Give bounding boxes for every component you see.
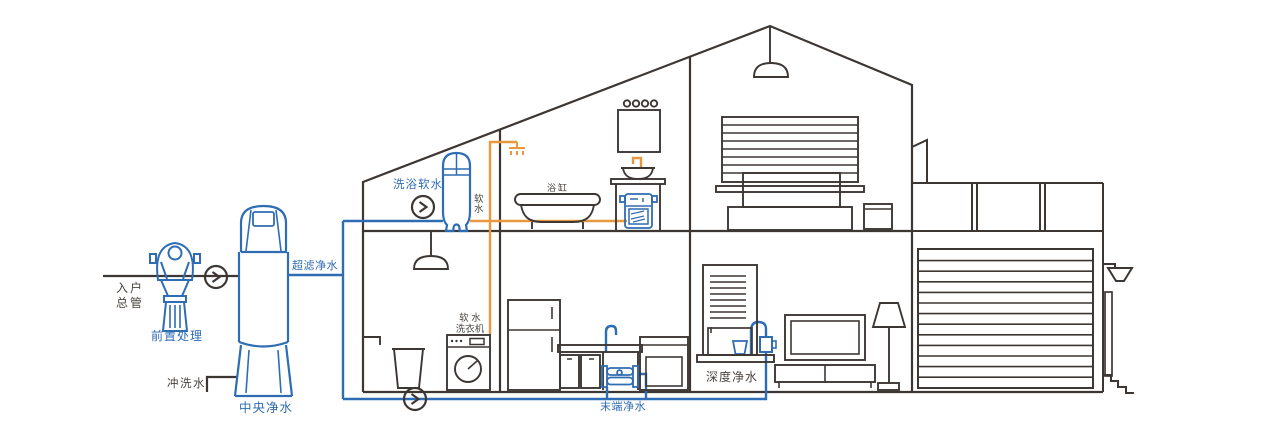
- oven-door: [646, 357, 682, 386]
- vanity-sink-bowl: [621, 168, 655, 179]
- pre-filter-port-left: [150, 254, 156, 263]
- flow-arrow-icon: [412, 196, 434, 218]
- water-dispenser-cabinet: [703, 265, 757, 355]
- garage: [912, 140, 1134, 393]
- bathtub-feet: [532, 222, 583, 229]
- label-deep-purifier: 深度净水: [706, 370, 758, 385]
- shower-head-icon: [509, 142, 525, 155]
- central-purifier-head-facets: [246, 210, 281, 251]
- dispenser-vents: [710, 276, 746, 318]
- label-pre-treatment: 前置处理: [151, 329, 203, 344]
- kitchen-fixtures: [508, 300, 688, 390]
- label-central-purifier: 中央净水: [239, 401, 293, 417]
- label-ultrafiltration: 超滤净水: [292, 260, 338, 274]
- filter-tube-bottom: [607, 378, 633, 385]
- house-water-system-diagram: 入户 总管 前置处理 冲洗水 中央净水 超滤净水 洗浴软水 软 水 浴缸 软 水…: [0, 0, 1280, 434]
- garage-rail-posts: [972, 183, 1103, 392]
- label-entry-main: 入户 总管: [116, 281, 144, 311]
- bedroom-fixtures: [716, 26, 892, 230]
- filter-gauge: [617, 370, 622, 375]
- bathtub-rim: [515, 194, 600, 205]
- garage-deck-rails: [912, 183, 1103, 231]
- water-cup-icon: [733, 341, 747, 354]
- garage-parapet: [912, 140, 927, 182]
- vanity-device-waves: [631, 211, 645, 222]
- bathroom-mirror: [618, 110, 660, 152]
- bed-headboard: [743, 173, 840, 207]
- vanity-device-controls: [626, 198, 651, 206]
- laundry-pendant-lamp: [414, 256, 448, 269]
- pre-filter-dial: [169, 247, 182, 260]
- vanity-device-panel: [629, 209, 648, 224]
- window-blinds-slats: [722, 125, 858, 173]
- soft-water-pipes: [470, 142, 641, 335]
- label-flush-water: 冲洗水: [167, 377, 206, 391]
- pre-filter-device: [150, 243, 200, 331]
- kitchen-counter: [558, 345, 642, 352]
- house-diagram-svg: [0, 0, 1280, 434]
- laundry-basket: [392, 349, 425, 388]
- filter-cap-right: [633, 366, 638, 387]
- central-purifier-body: [239, 252, 288, 342]
- central-purifier-window: [253, 212, 274, 226]
- dispenser-counter: [697, 355, 774, 362]
- window-sill: [716, 186, 864, 192]
- garage-door-slats: [918, 261, 1093, 378]
- kitchen-faucet: [606, 326, 616, 352]
- vanity-undersink-device: [620, 194, 657, 228]
- dispenser-inline-filter: [760, 337, 772, 352]
- bedroom-pendant-lamp: [754, 63, 788, 77]
- outdoor-wall-lamp-icon: [1103, 264, 1132, 281]
- utility-faucet: [364, 337, 380, 345]
- pre-filter-neck: [161, 280, 189, 296]
- label-bathtub: 浴缸: [547, 183, 569, 194]
- dispenser-filter-tab: [772, 341, 776, 348]
- laundry-room-fixtures: [364, 231, 490, 390]
- washer-buttons-icon: [451, 340, 462, 342]
- label-terminal-purifier: 末端净水: [600, 401, 646, 415]
- bathroom-fixtures: [515, 100, 665, 230]
- pre-filter-port-right: [194, 254, 200, 263]
- softener-tank-seams: [444, 154, 470, 175]
- cabinet-door-2: [581, 355, 600, 388]
- entry-steps: [1103, 375, 1134, 393]
- pre-filter-head: [157, 243, 193, 280]
- vanity-faucet: [633, 158, 641, 168]
- filter-cap-left: [602, 366, 607, 387]
- washer-display: [470, 339, 484, 345]
- bed-body: [728, 207, 852, 230]
- vanity-legs: [616, 184, 660, 230]
- vanity-device-tab-right: [652, 196, 657, 202]
- label-soft-water: 软 水: [474, 195, 484, 215]
- downspout: [1105, 292, 1112, 376]
- central-purifier-base: [235, 345, 292, 396]
- soft-water-riser-pipe: [490, 142, 517, 335]
- central-purifier-device: [235, 206, 292, 396]
- label-soft-washer: 软 水 洗衣机: [452, 313, 488, 335]
- flush-water-pipe: [207, 377, 238, 392]
- pre-filter-ribs: [170, 305, 180, 328]
- water-softener-device: [443, 153, 470, 231]
- undersink-terminal-filter-device: [602, 366, 638, 387]
- bathtub-bowl: [521, 205, 594, 222]
- nightstand: [864, 204, 892, 229]
- washer-door-handle: [468, 361, 477, 369]
- mirror-lights-icon: [624, 100, 657, 106]
- vanity-device-tab-left: [620, 196, 625, 202]
- tv-stand-details: [779, 365, 871, 388]
- central-purifier-body-bottom: [239, 342, 288, 347]
- label-bath-softener: 洗浴软水: [393, 178, 443, 192]
- floor-lamp-shade: [873, 303, 905, 327]
- tv-screen: [791, 321, 859, 354]
- central-purifier-base-facets: [246, 350, 281, 393]
- cabinet-door-1: [560, 355, 579, 388]
- floor-lamp-base: [878, 383, 899, 390]
